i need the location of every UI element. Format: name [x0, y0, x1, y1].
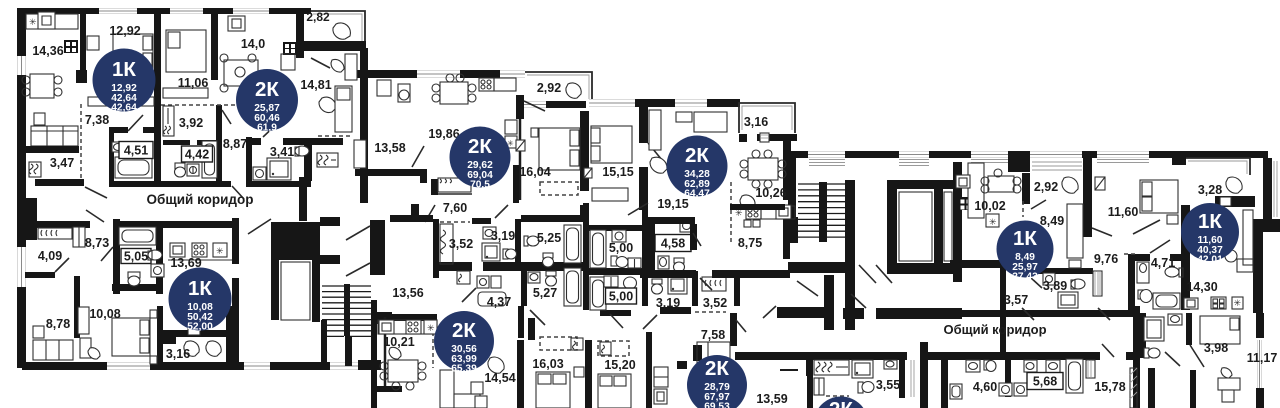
svg-text:11,06: 11,06: [178, 76, 209, 90]
svg-text:4,42: 4,42: [185, 148, 209, 162]
svg-text:1К: 1К: [112, 58, 136, 81]
svg-text:1К: 1К: [1198, 210, 1222, 233]
svg-text:10,26: 10,26: [755, 186, 786, 200]
svg-text:14,81: 14,81: [300, 78, 331, 92]
svg-text:15,78: 15,78: [1094, 380, 1125, 394]
svg-text:3,52: 3,52: [703, 296, 727, 310]
svg-text:✳: ✳: [29, 17, 37, 27]
svg-text:64,47: 64,47: [684, 188, 710, 199]
svg-text:✳: ✳: [427, 323, 435, 333]
svg-text:14,36: 14,36: [32, 44, 63, 58]
svg-text:4,58: 4,58: [661, 237, 685, 251]
svg-text:7,58: 7,58: [701, 328, 725, 342]
svg-text:42,01: 42,01: [1197, 254, 1223, 265]
svg-text:2,92: 2,92: [1034, 180, 1058, 194]
svg-text:10,02: 10,02: [974, 199, 1005, 213]
svg-text:1К: 1К: [1013, 227, 1037, 250]
svg-text:15,20: 15,20: [604, 358, 635, 372]
svg-text:Общий коридор: Общий коридор: [146, 192, 253, 207]
svg-text:11,17: 11,17: [1247, 351, 1278, 365]
svg-text:3,16: 3,16: [166, 347, 190, 361]
svg-text:11,60: 11,60: [1108, 205, 1139, 219]
svg-text:✳: ✳: [1234, 298, 1242, 308]
svg-text:5,27: 5,27: [533, 286, 557, 300]
svg-text:12,92: 12,92: [109, 24, 140, 38]
svg-text:15,15: 15,15: [602, 165, 633, 179]
svg-text:2,82: 2,82: [306, 10, 330, 24]
svg-text:61,9: 61,9: [257, 122, 277, 133]
svg-text:3,57: 3,57: [1004, 293, 1028, 307]
svg-text:3,19: 3,19: [656, 296, 680, 310]
svg-text:8,87: 8,87: [223, 137, 247, 151]
svg-text:65,39: 65,39: [451, 363, 477, 374]
svg-text:5,00: 5,00: [609, 290, 633, 304]
svg-text:3,55: 3,55: [876, 378, 900, 392]
svg-text:4,37: 4,37: [487, 295, 511, 309]
svg-text:✳: ✳: [216, 246, 224, 256]
svg-text:3,52: 3,52: [449, 237, 473, 251]
svg-text:42,64: 42,64: [111, 102, 137, 113]
svg-text:3,16: 3,16: [744, 115, 768, 129]
svg-text:16,04: 16,04: [519, 165, 550, 179]
svg-text:2К: 2К: [829, 398, 853, 408]
svg-text:Общий коридор: Общий коридор: [943, 322, 1046, 337]
svg-text:14,54: 14,54: [484, 371, 515, 385]
svg-text:3,41: 3,41: [270, 145, 294, 159]
svg-text:10,21: 10,21: [383, 335, 414, 349]
svg-text:✳: ✳: [989, 217, 997, 227]
svg-text:2К: 2К: [685, 144, 709, 167]
svg-text:2К: 2К: [705, 357, 729, 380]
svg-text:8,78: 8,78: [46, 317, 70, 331]
svg-text:3,19: 3,19: [491, 229, 515, 243]
svg-text:8,75: 8,75: [738, 236, 762, 250]
svg-text:14,0: 14,0: [241, 37, 265, 51]
svg-text:3,28: 3,28: [1198, 183, 1222, 197]
svg-text:3,47: 3,47: [50, 156, 74, 170]
svg-text:3,98: 3,98: [1204, 341, 1228, 355]
svg-text:9,76: 9,76: [1094, 252, 1118, 266]
svg-text:19,86: 19,86: [428, 127, 459, 141]
svg-text:5,25: 5,25: [537, 231, 561, 245]
svg-text:7,38: 7,38: [85, 113, 109, 127]
svg-text:16,03: 16,03: [532, 357, 563, 371]
svg-text:5,00: 5,00: [609, 241, 633, 255]
svg-text:3,92: 3,92: [179, 116, 203, 130]
svg-text:4,71: 4,71: [1151, 256, 1175, 270]
svg-text:4,60: 4,60: [973, 380, 997, 394]
svg-text:69,53: 69,53: [704, 401, 730, 408]
svg-text:1К: 1К: [188, 277, 212, 300]
svg-text:2К: 2К: [468, 135, 492, 158]
svg-text:2К: 2К: [255, 78, 279, 101]
svg-text:8,73: 8,73: [85, 236, 109, 250]
svg-text:5,68: 5,68: [1033, 375, 1057, 389]
svg-text:2,92: 2,92: [537, 81, 561, 95]
svg-text:4,09: 4,09: [38, 249, 62, 263]
svg-text:4,51: 4,51: [124, 144, 148, 158]
svg-text:8,49: 8,49: [1040, 214, 1064, 228]
svg-text:13,58: 13,58: [374, 141, 405, 155]
svg-text:52,00: 52,00: [187, 321, 213, 332]
svg-text:10,08: 10,08: [89, 307, 120, 321]
svg-text:7,60: 7,60: [443, 201, 467, 215]
svg-text:2К: 2К: [452, 319, 476, 342]
svg-text:5,05: 5,05: [124, 250, 148, 264]
svg-text:27,43: 27,43: [1012, 271, 1038, 282]
svg-text:3,89: 3,89: [1043, 279, 1067, 293]
svg-text:14,30: 14,30: [1186, 280, 1217, 294]
svg-text:70,5: 70,5: [470, 179, 490, 190]
svg-text:13,56: 13,56: [392, 286, 423, 300]
svg-text:13,59: 13,59: [756, 392, 787, 406]
